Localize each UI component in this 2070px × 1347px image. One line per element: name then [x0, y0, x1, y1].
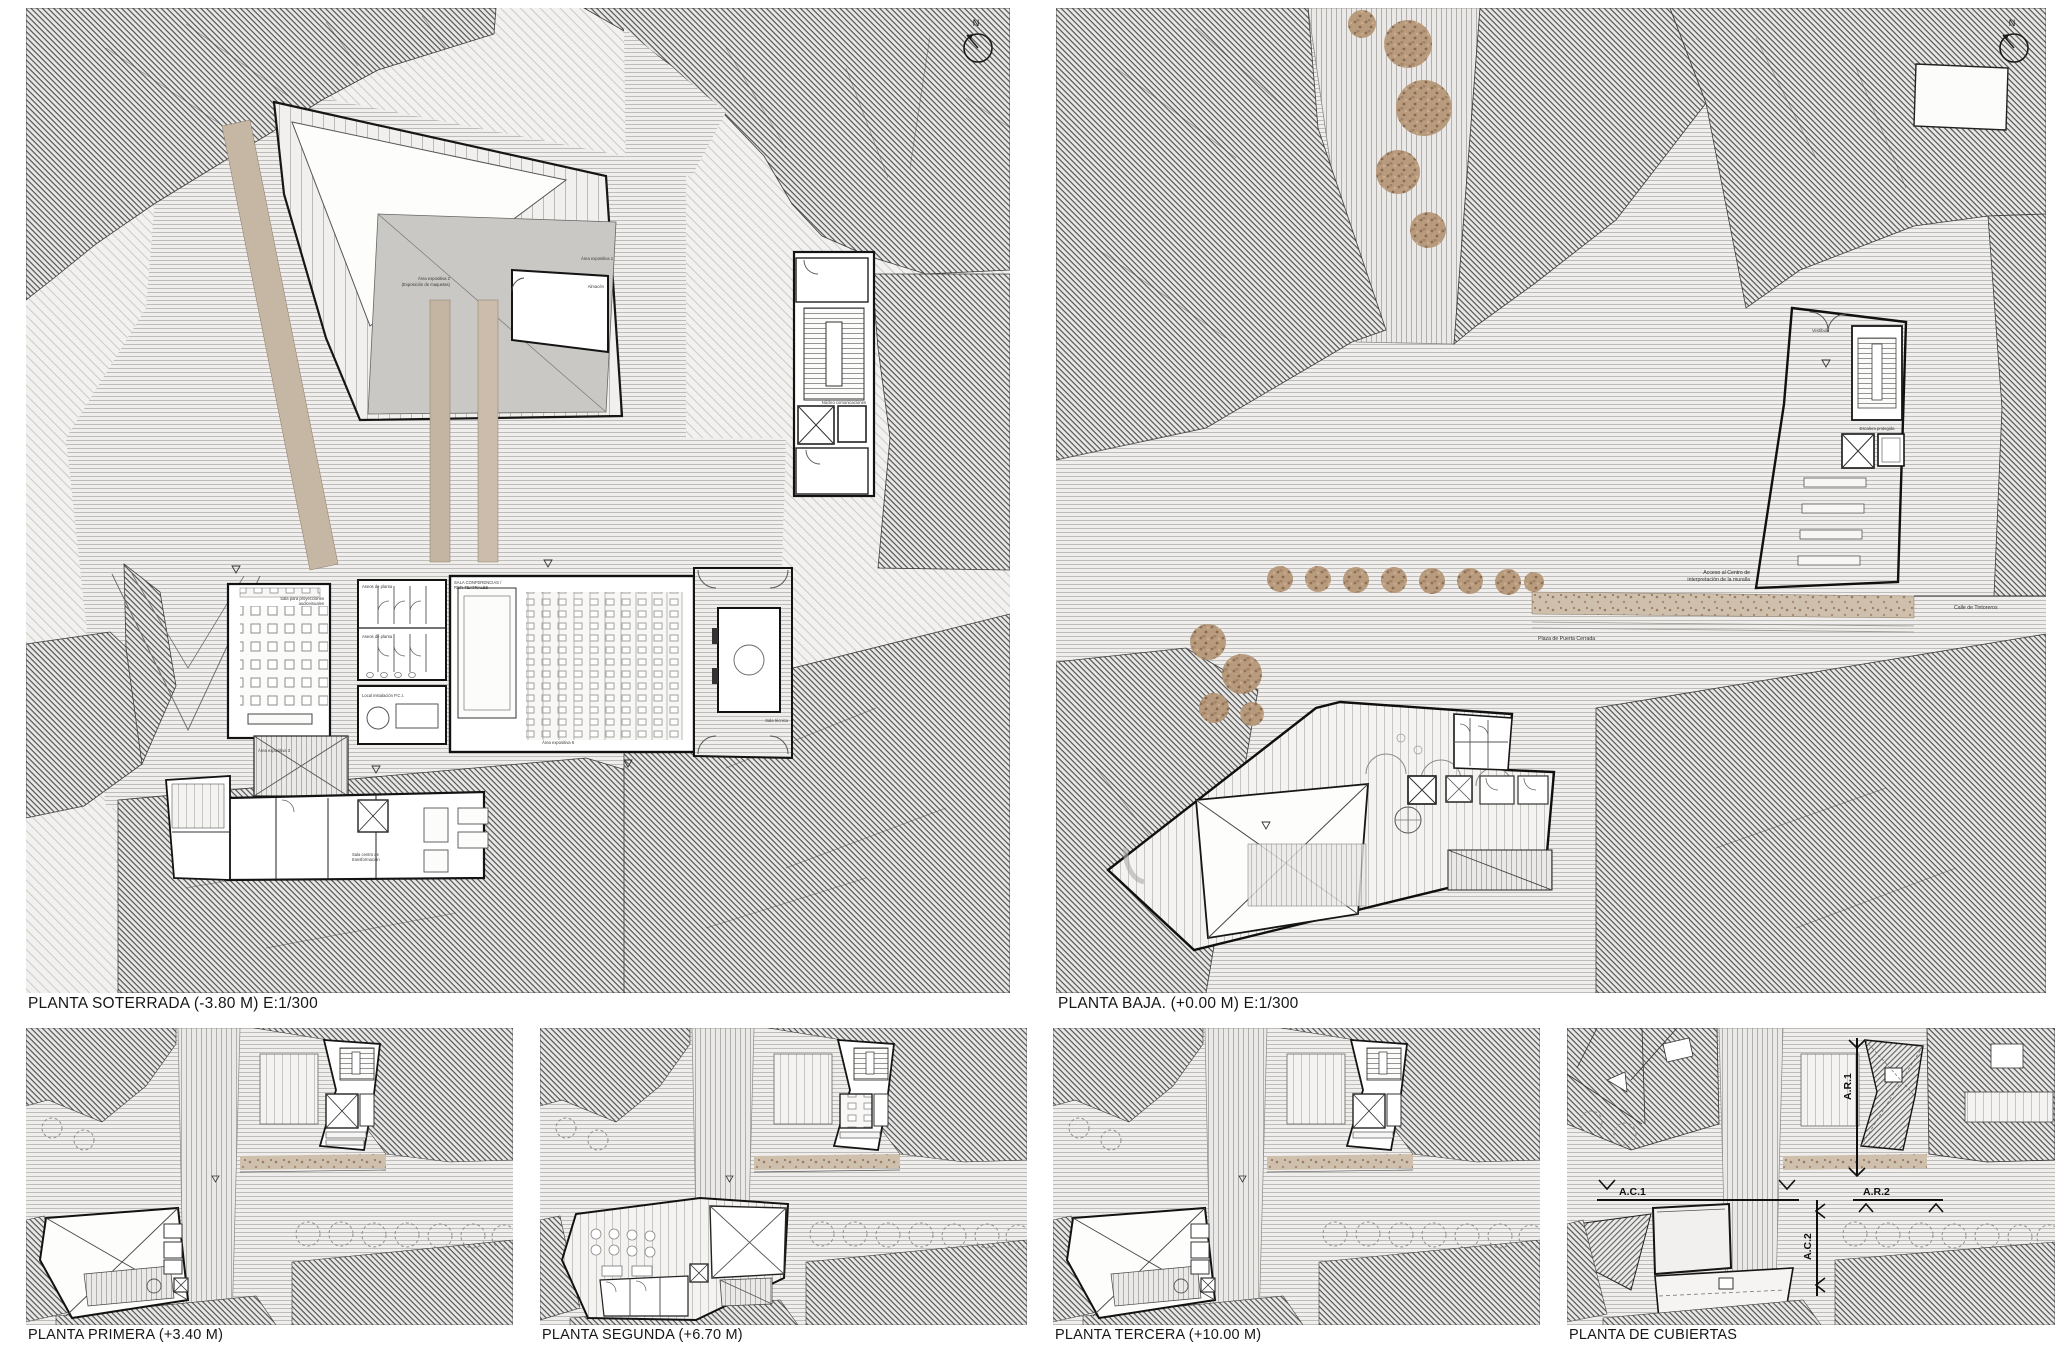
primera-plan-drawing — [26, 1028, 513, 1325]
label-sala-tecnica: Sala técnica — [765, 718, 788, 723]
label-area-expositiva-2b: (Exposición de maquetas) — [402, 282, 451, 287]
conference-hall: SALA CONFERENCIAS / REP. TEATRALES — [450, 576, 694, 752]
label-area-expositiva-2a: Área expositiva 2 — [418, 276, 451, 281]
paving-band — [1532, 592, 1914, 618]
baja-plan-drawing: Plaza de Puerta Cerrada Calle de Tintore… — [1056, 8, 2046, 993]
pci-room: Local instalación P.C.I. — [358, 686, 446, 744]
projection-room: Sala para proyecciones audiovisuales — [228, 584, 330, 738]
pergola-slats — [1287, 1054, 1345, 1124]
label-almacen: Almacén — [588, 284, 605, 289]
paving-band — [240, 1154, 386, 1170]
label-area-expositiva-6: Área expositiva 6 — [542, 740, 575, 745]
neighbor-building — [1914, 64, 2008, 130]
roofs-topright — [1861, 1028, 2055, 1162]
marker-ac1-label: A.C.1 — [1619, 1186, 1646, 1198]
main-building — [1067, 1208, 1215, 1318]
technical-area: Sala técnica — [694, 568, 792, 758]
label-acceso-2: interpretación de la muralla — [1687, 577, 1750, 583]
drawing-sheet: Almacén Área expositiva 2 (Exposición de… — [0, 0, 2070, 1347]
soterrada-plan-drawing: Almacén Área expositiva 2 (Exposición de… — [26, 8, 1010, 993]
panel-planta-primera — [26, 1028, 513, 1325]
label-area-expositiva-1: Área expositiva 1 — [581, 256, 614, 261]
title-planta-cubiertas: PLANTA DE CUBIERTAS — [1569, 1327, 1737, 1343]
title-planta-primera: PLANTA PRIMERA (+3.40 M) — [28, 1327, 223, 1343]
marker-ar1-label: A.R.1 — [1842, 1073, 1854, 1100]
title-planta-segunda: PLANTA SEGUNDA (+6.70 M) — [542, 1327, 743, 1343]
label-transformacion-2: transformación — [352, 857, 380, 862]
pergola-slats — [260, 1054, 318, 1124]
marker-ac2-label: A.C.2 — [1802, 1233, 1814, 1260]
pergola-slats — [774, 1054, 832, 1124]
main-building — [562, 1198, 788, 1320]
panel-planta-tercera — [1053, 1028, 1540, 1325]
label-aseos-1: Aseos de planta — [362, 584, 393, 589]
label-escalera: Escalera protegida — [1860, 426, 1896, 431]
cubiertas-plan-drawing: A.C.1 A.R.2 A.R.1 A.C.2 — [1567, 1028, 2055, 1325]
compass-north-label: N — [973, 18, 980, 28]
tercera-plan-drawing — [1053, 1028, 1540, 1325]
panel-planta-baja: Plaza de Puerta Cerrada Calle de Tintore… — [1056, 8, 2046, 993]
title-planta-baja: PLANTA BAJA. (+0.00 M) E:1/300 — [1058, 995, 1298, 1013]
label-sala-conferencias-2: REP. TEATRALES — [454, 585, 489, 590]
paving-band — [754, 1154, 900, 1170]
paving-band — [1267, 1154, 1413, 1170]
wc-block: Aseos de planta Aseos de planta — [358, 580, 446, 680]
label-nucleo: Núcleo comunicaciones — [822, 400, 866, 405]
marker-ar2-label: A.R.2 — [1863, 1186, 1890, 1198]
panel-planta-segunda — [540, 1028, 1027, 1325]
segunda-plan-drawing — [540, 1028, 1027, 1325]
label-area-expositiva-3: Área expositiva 3 — [258, 748, 291, 753]
label-pci: Local instalación P.C.I. — [362, 693, 404, 698]
compass-north-label: N — [2009, 18, 2016, 28]
paving-band — [1783, 1154, 1927, 1170]
label-calle-tintoreros: Calle de Tintoreros — [1954, 605, 1998, 611]
main-building — [40, 1208, 188, 1318]
storeroom — [512, 270, 608, 352]
panel-planta-cubiertas: A.C.1 A.R.2 A.R.1 A.C.2 — [1567, 1028, 2055, 1325]
title-planta-tercera: PLANTA TERCERA (+10.00 M) — [1055, 1327, 1261, 1343]
label-sala-proyecciones-2: audiovisuales — [299, 601, 324, 606]
auditorium-seating — [526, 592, 682, 740]
label-vestibulo: Vestíbulo — [1812, 328, 1830, 333]
panel-planta-soterrada: Almacén Área expositiva 2 (Exposición de… — [26, 8, 1010, 993]
label-plaza-puerta-cerrada: Plaza de Puerta Cerrada — [1538, 636, 1595, 642]
label-acceso-1: Acceso al Centro de — [1703, 570, 1750, 576]
label-aseos-2: Aseos de planta — [362, 634, 393, 639]
title-planta-soterrada: PLANTA SOTERRADA (-3.80 M) E:1/300 — [28, 995, 318, 1013]
stair-tower: Núcleo comunicaciones — [794, 252, 874, 496]
